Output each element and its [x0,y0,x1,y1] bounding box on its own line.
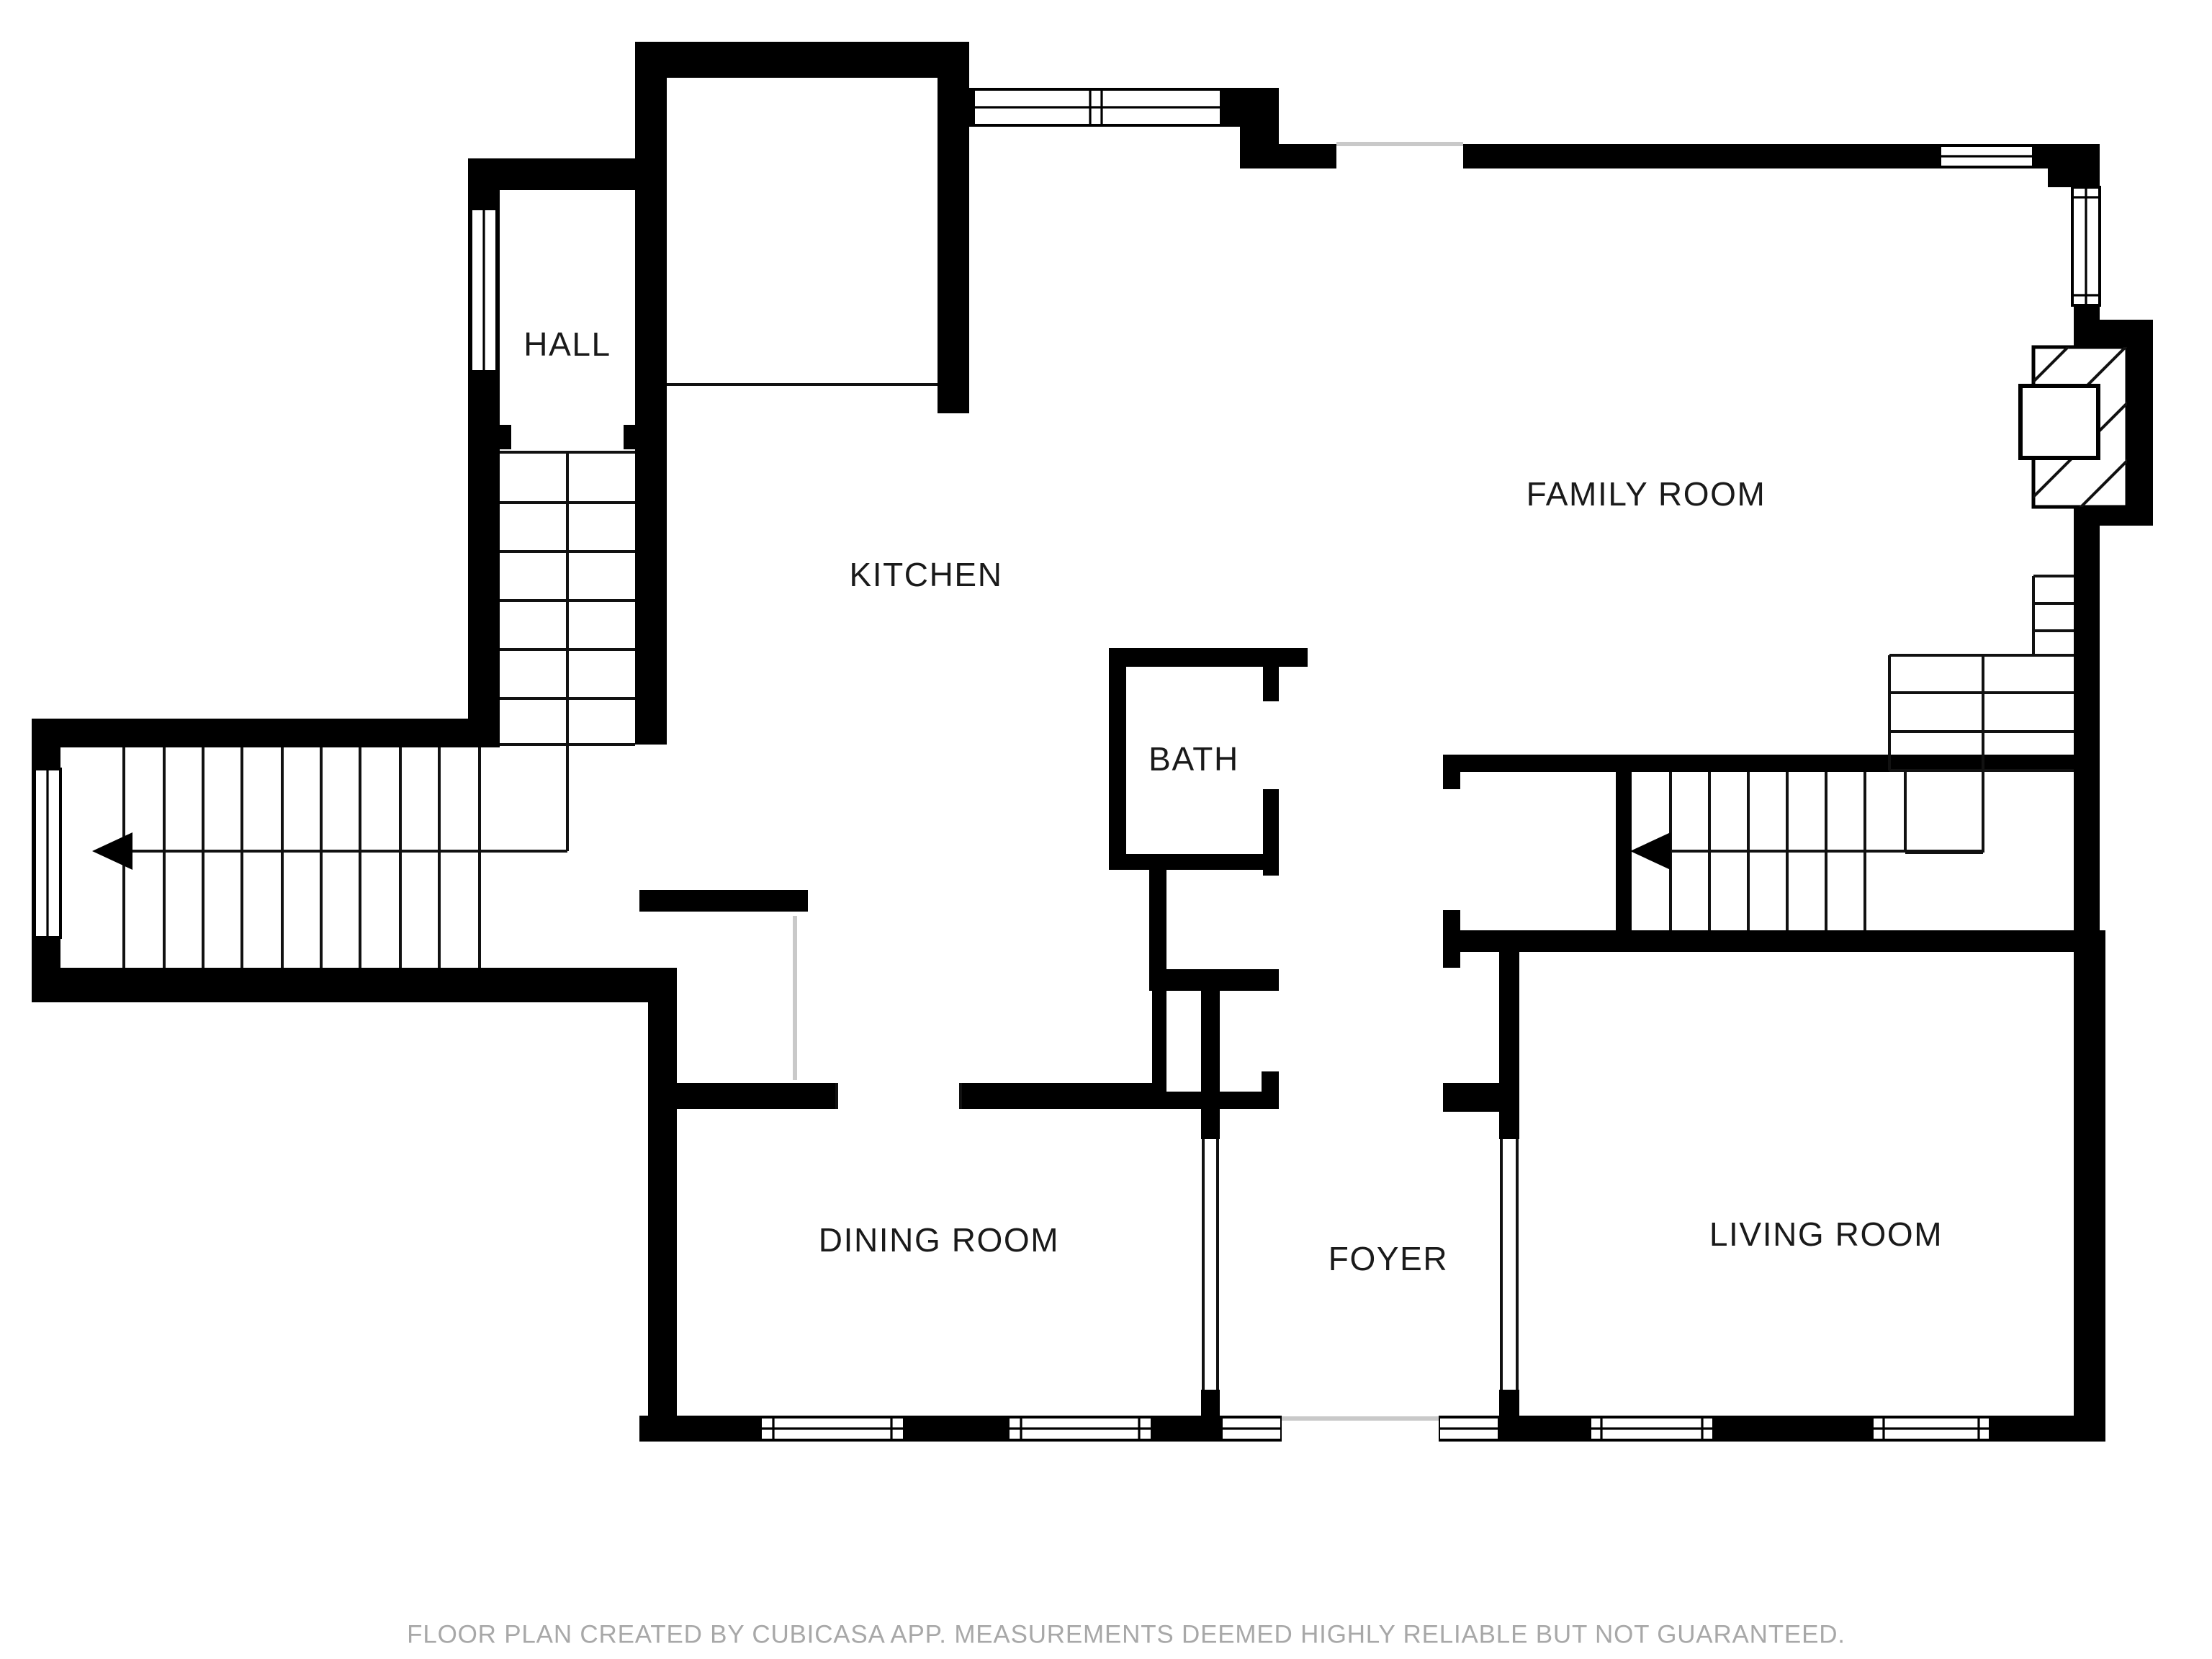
room-labels: HALL KITCHEN FAMILY ROOM BATH DINING ROO… [523,325,1943,1277]
window-dining-2 [1008,1417,1152,1440]
room-label-dining-room: DINING ROOM [819,1221,1059,1259]
staircase-left [92,452,635,968]
room-dining-room [677,1109,1201,1416]
window-family-north [1940,145,2033,167]
firebox [2020,386,2098,458]
room-label-hall: HALL [523,325,611,363]
room-label-living-room: LIVING ROOM [1709,1215,1943,1253]
room-label-foyer: FOYER [1328,1240,1448,1277]
room-label-bath: BATH [1148,740,1239,778]
window-living-2 [1872,1417,1990,1440]
room-label-kitchen: KITCHEN [849,556,1002,593]
staircase-right [1630,576,2074,930]
footer-disclaimer: FLOOR PLAN CREATED BY CUBICASA APP. MEAS… [407,1620,1845,1648]
fireplace [2010,320,2153,549]
room-kitchen [667,127,1444,755]
window-hall-west [471,209,497,372]
window-kitchen-north [974,89,1221,125]
room-label-family-room: FAMILY ROOM [1527,475,1766,513]
stair-landing-winders [1889,576,2074,853]
stair-steps [124,452,635,968]
window-entry-sidelight-left [1221,1417,1282,1440]
window-stair-west [35,769,60,938]
floor-plan-page: HALL KITCHEN FAMILY ROOM BATH DINING ROO… [0,0,2212,1659]
room-living-room [1519,952,2074,1416]
window-dining-1 [760,1417,904,1440]
window-living-1 [1590,1417,1714,1440]
window-family-east [2072,187,2100,305]
window-entry-sidelight-right [1439,1417,1499,1440]
stair-direction-arrow [1630,832,1983,870]
floor-plan-canvas: HALL KITCHEN FAMILY ROOM BATH DINING ROO… [0,0,2212,1659]
room-hall [500,190,635,425]
